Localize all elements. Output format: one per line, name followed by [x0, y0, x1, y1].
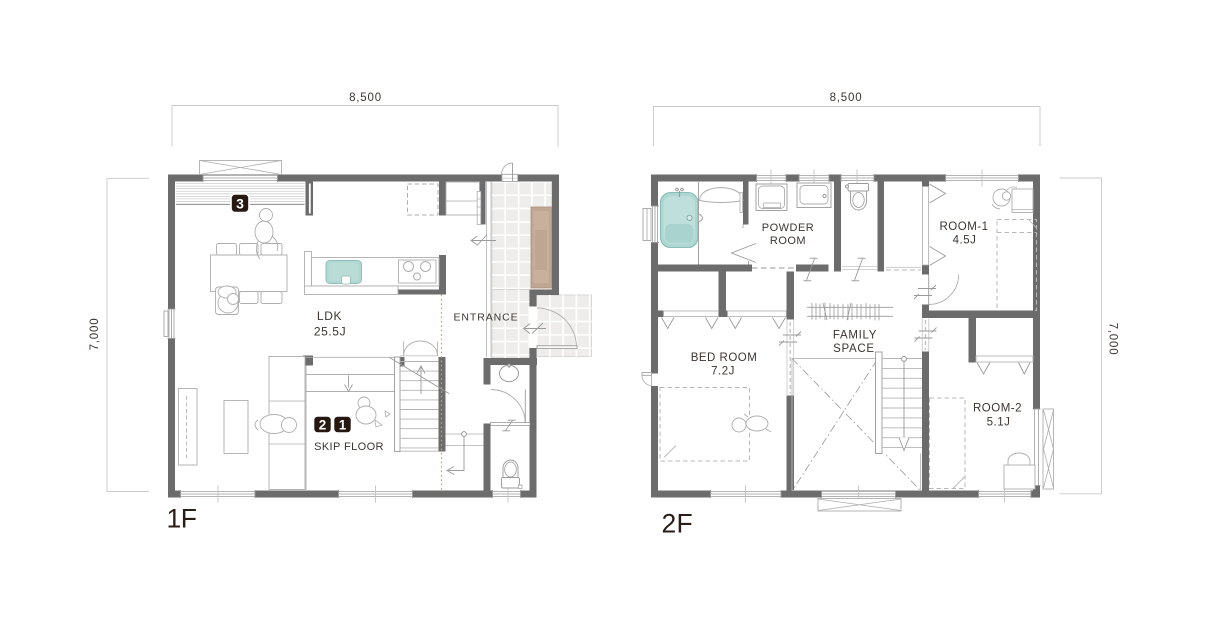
svg-text:BED ROOM: BED ROOM: [691, 352, 758, 364]
svg-text:SPACE: SPACE: [833, 343, 875, 355]
svg-text:1: 1: [339, 418, 347, 433]
svg-text:ROOM-2: ROOM-2: [973, 403, 1022, 415]
svg-text:FAMILY: FAMILY: [833, 330, 877, 342]
svg-text:ROOM: ROOM: [770, 235, 806, 247]
svg-text:7,000: 7,000: [1107, 323, 1119, 356]
svg-text:SKIP FLOOR: SKIP FLOOR: [314, 441, 384, 453]
svg-text:ROOM-1: ROOM-1: [940, 221, 989, 233]
svg-text:7,000: 7,000: [89, 318, 101, 351]
svg-text:LDK: LDK: [317, 309, 342, 323]
svg-text:25.5J: 25.5J: [314, 325, 346, 339]
svg-text:ENTRANCE: ENTRANCE: [454, 312, 519, 324]
svg-text:8,500: 8,500: [830, 92, 863, 104]
svg-text:POWDER: POWDER: [762, 222, 815, 234]
svg-text:7.2J: 7.2J: [711, 366, 735, 378]
svg-text:3: 3: [236, 196, 244, 212]
svg-text:8,500: 8,500: [349, 92, 382, 104]
svg-text:5.1J: 5.1J: [987, 417, 1011, 429]
svg-text:2F: 2F: [662, 509, 694, 539]
svg-text:1F: 1F: [167, 504, 197, 534]
svg-text:4.5J: 4.5J: [953, 235, 977, 247]
svg-text:2: 2: [319, 418, 327, 433]
